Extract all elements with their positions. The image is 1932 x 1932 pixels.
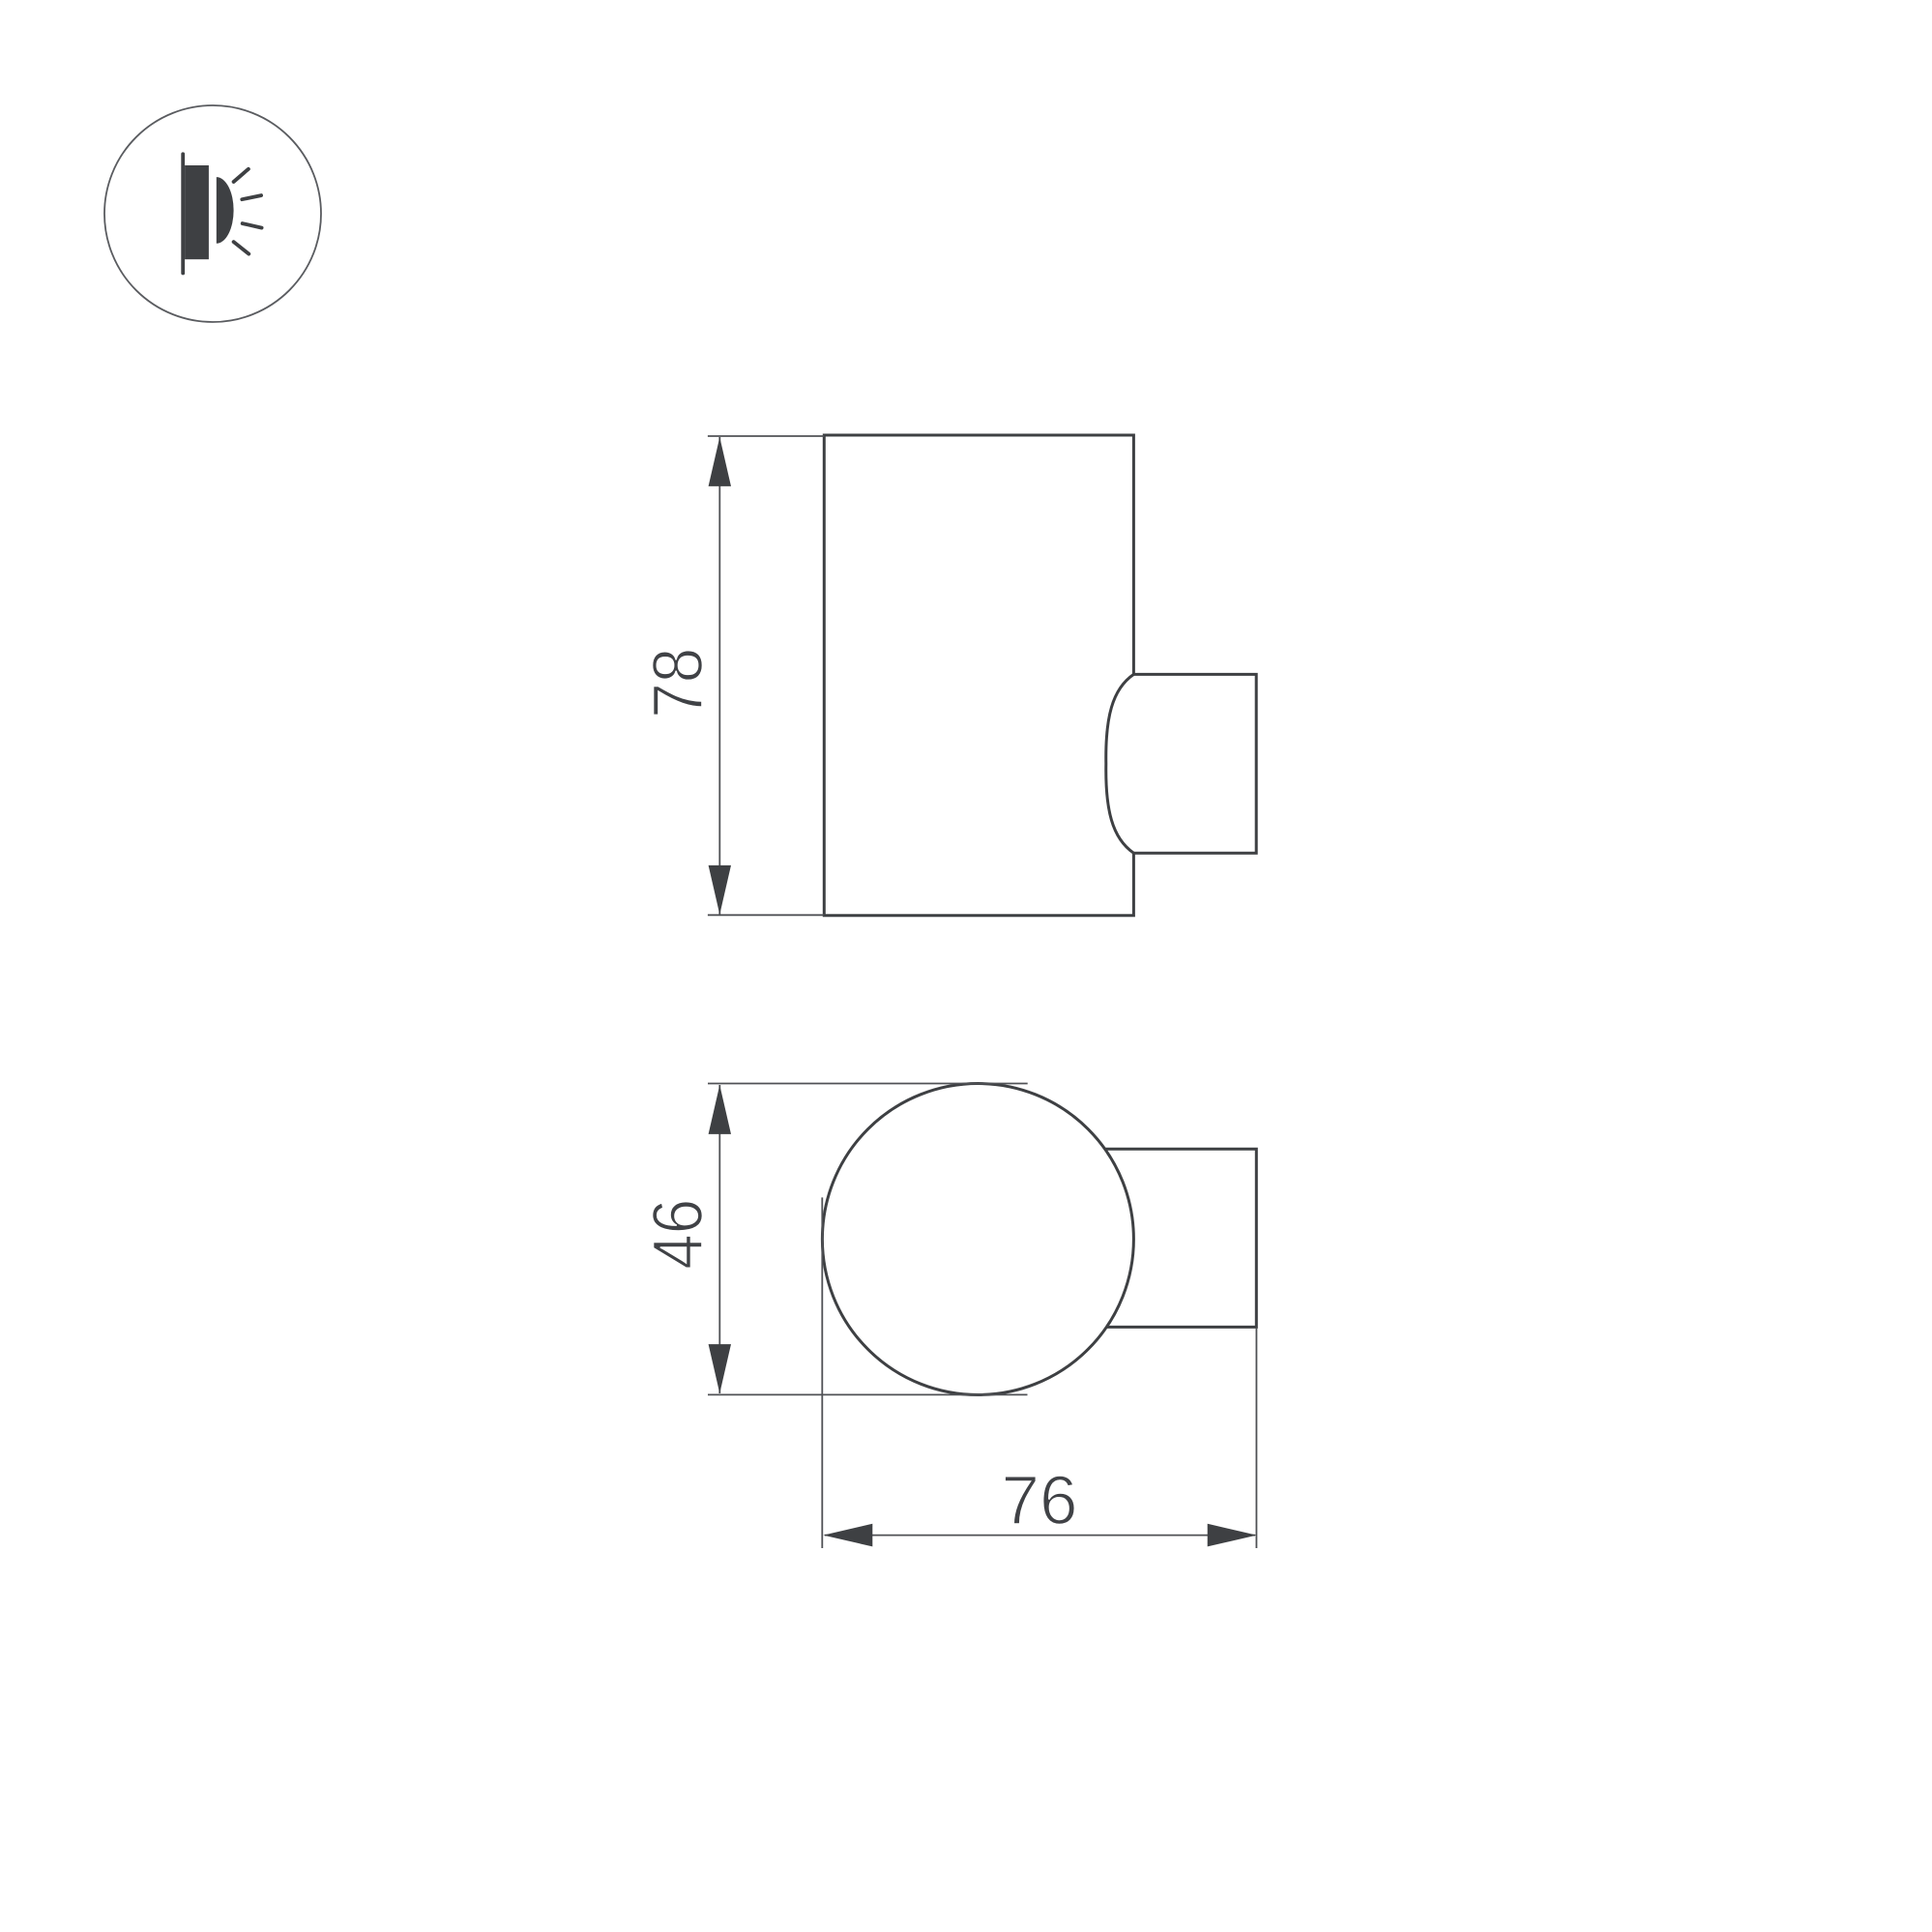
- svg-text:76: 76: [1002, 1463, 1078, 1539]
- svg-text:78: 78: [639, 648, 717, 718]
- svg-text:46: 46: [639, 1199, 717, 1270]
